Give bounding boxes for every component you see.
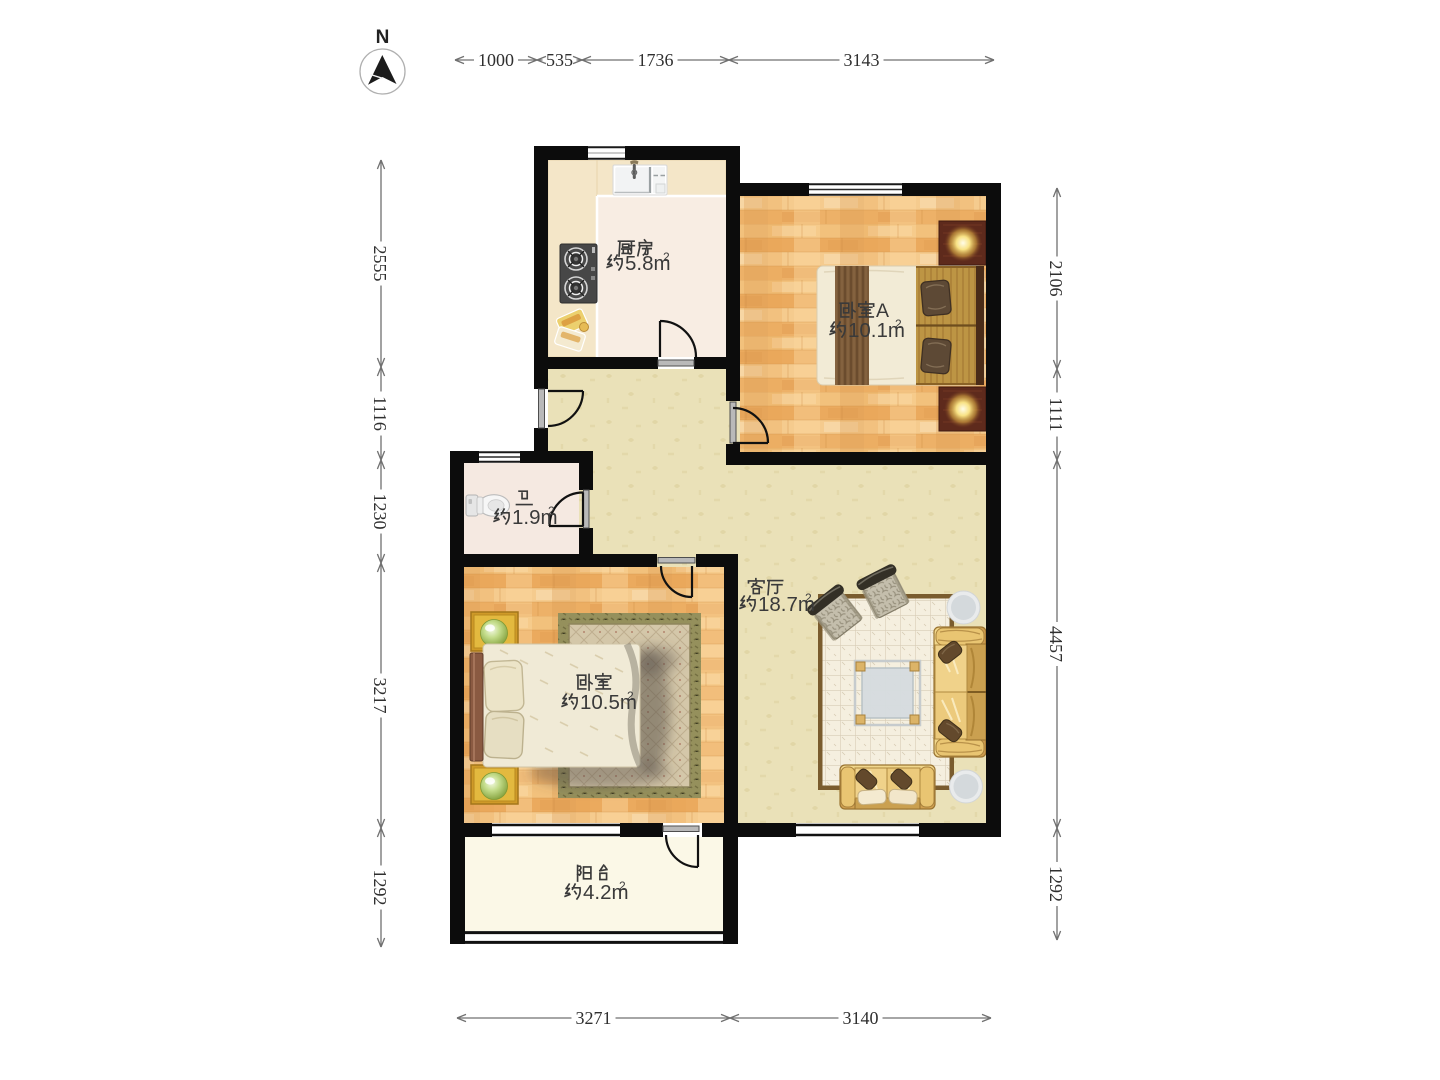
svg-text:2: 2 (619, 879, 626, 893)
svg-text:4457: 4457 (1046, 626, 1066, 662)
svg-text:2106: 2106 (1046, 261, 1066, 297)
svg-text:1000: 1000 (478, 50, 514, 70)
svg-text:3217: 3217 (370, 678, 390, 714)
svg-text:3271: 3271 (576, 1008, 612, 1028)
svg-text:2555: 2555 (370, 246, 390, 282)
svg-text:N: N (376, 27, 390, 48)
svg-text:2: 2 (895, 317, 902, 331)
svg-text:1116: 1116 (370, 396, 390, 431)
svg-text:1292: 1292 (1046, 866, 1066, 902)
svg-text:3140: 3140 (843, 1008, 879, 1028)
svg-text:535: 535 (546, 50, 573, 70)
svg-text:2: 2 (627, 689, 634, 703)
svg-text:1230: 1230 (370, 494, 390, 530)
svg-text:2: 2 (548, 504, 555, 518)
svg-text:1111: 1111 (1046, 398, 1066, 432)
svg-text:1736: 1736 (638, 50, 674, 70)
svg-text:3143: 3143 (844, 50, 880, 70)
svg-text:2: 2 (805, 591, 812, 605)
svg-text:1292: 1292 (370, 870, 390, 906)
svg-text:2: 2 (663, 250, 670, 264)
